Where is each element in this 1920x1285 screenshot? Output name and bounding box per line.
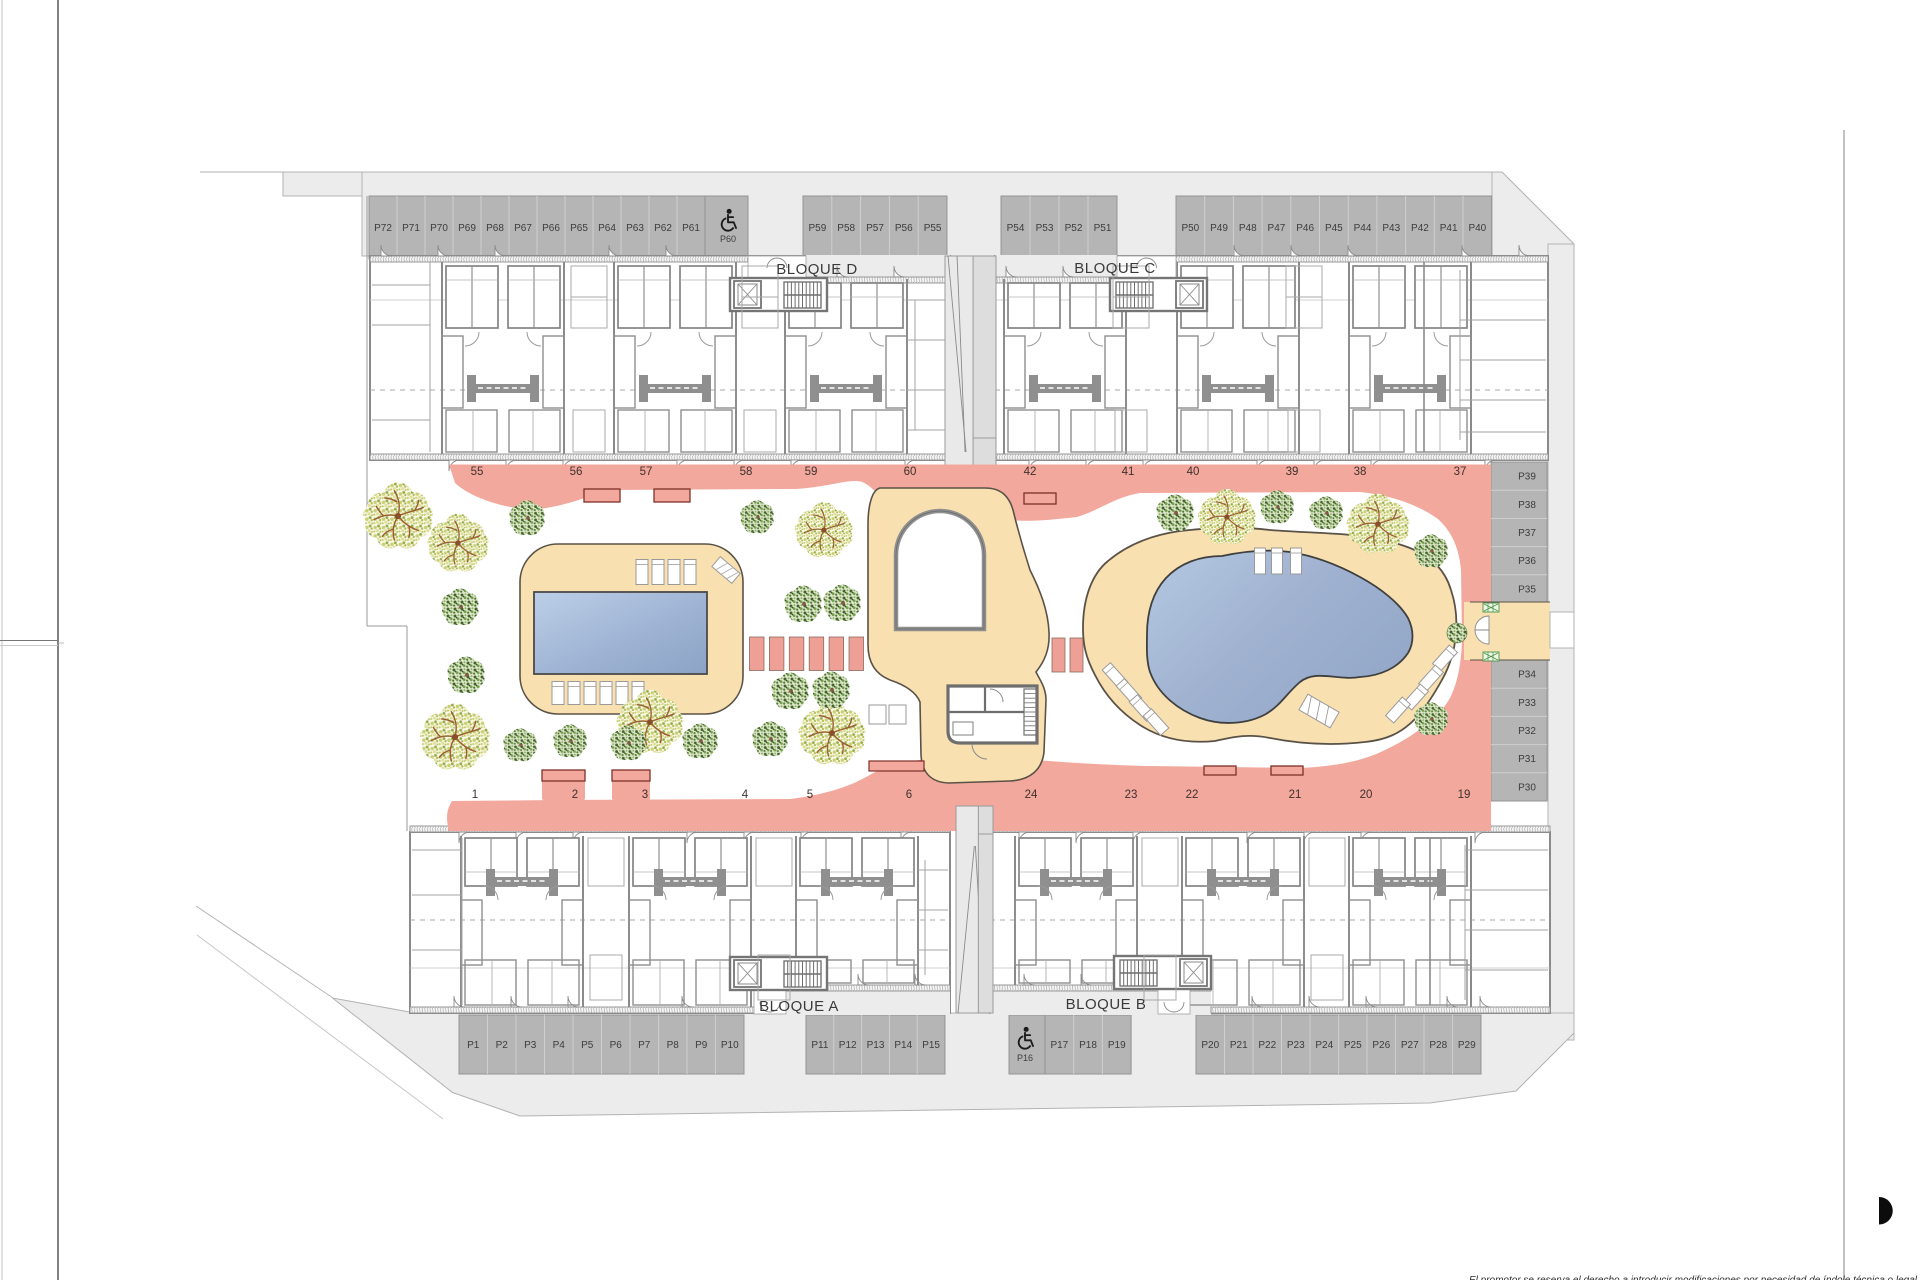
svg-text:BLOQUE D: BLOQUE D <box>776 261 858 278</box>
svg-text:P37: P37 <box>1518 528 1536 539</box>
svg-text:BLOQUE B: BLOQUE B <box>1066 996 1147 1013</box>
svg-text:P21: P21 <box>1230 1040 1248 1051</box>
svg-text:5: 5 <box>807 789 813 801</box>
svg-text:P6: P6 <box>610 1040 623 1051</box>
svg-text:P33: P33 <box>1518 698 1536 709</box>
svg-text:40: 40 <box>1187 466 1200 478</box>
svg-text:58: 58 <box>740 466 753 478</box>
svg-text:P14: P14 <box>894 1040 912 1051</box>
svg-text:P20: P20 <box>1201 1040 1219 1051</box>
svg-text:P43: P43 <box>1382 223 1400 234</box>
svg-text:60: 60 <box>904 466 917 478</box>
svg-text:P66: P66 <box>542 223 560 234</box>
svg-text:P30: P30 <box>1518 782 1536 793</box>
svg-text:P40: P40 <box>1468 223 1486 234</box>
svg-text:P29: P29 <box>1458 1040 1476 1051</box>
svg-text:6: 6 <box>906 789 912 801</box>
svg-text:P45: P45 <box>1325 223 1343 234</box>
svg-text:P68: P68 <box>486 223 504 234</box>
svg-text:P34: P34 <box>1518 670 1536 681</box>
svg-text:P9: P9 <box>695 1040 708 1051</box>
svg-text:P4: P4 <box>553 1040 566 1051</box>
svg-text:P1: P1 <box>467 1040 480 1051</box>
svg-text:3: 3 <box>642 789 648 801</box>
svg-text:P70: P70 <box>430 223 448 234</box>
svg-text:P57: P57 <box>866 223 884 234</box>
svg-text:P11: P11 <box>811 1040 828 1051</box>
svg-text:P63: P63 <box>626 223 644 234</box>
svg-text:P39: P39 <box>1518 472 1536 483</box>
svg-text:P42: P42 <box>1411 223 1429 234</box>
svg-text:P28: P28 <box>1429 1040 1447 1051</box>
svg-text:57: 57 <box>640 466 653 478</box>
svg-text:P2: P2 <box>496 1040 509 1051</box>
svg-text:P15: P15 <box>922 1040 940 1051</box>
svg-text:P22: P22 <box>1258 1040 1276 1051</box>
svg-text:41: 41 <box>1122 466 1135 478</box>
svg-text:P12: P12 <box>839 1040 857 1051</box>
svg-text:59: 59 <box>805 466 818 478</box>
svg-text:P60: P60 <box>720 234 736 244</box>
svg-text:P10: P10 <box>721 1040 739 1051</box>
svg-text:P24: P24 <box>1315 1040 1333 1051</box>
svg-text:P67: P67 <box>514 223 532 234</box>
svg-text:P49: P49 <box>1210 223 1228 234</box>
svg-text:P71: P71 <box>402 223 420 234</box>
svg-text:P47: P47 <box>1268 223 1286 234</box>
svg-text:P3: P3 <box>524 1040 537 1051</box>
svg-text:55: 55 <box>471 466 484 478</box>
svg-text:37: 37 <box>1454 466 1467 478</box>
svg-text:P18: P18 <box>1079 1040 1097 1051</box>
svg-text:P8: P8 <box>667 1040 680 1051</box>
svg-text:21: 21 <box>1289 789 1302 801</box>
svg-text:20: 20 <box>1360 789 1373 801</box>
svg-text:P55: P55 <box>924 223 942 234</box>
svg-text:P16: P16 <box>1017 1053 1033 1063</box>
svg-text:BLOQUE A: BLOQUE A <box>759 998 839 1015</box>
svg-text:P61: P61 <box>682 223 700 234</box>
svg-text:P58: P58 <box>837 223 855 234</box>
svg-text:P46: P46 <box>1296 223 1314 234</box>
svg-text:P41: P41 <box>1440 223 1458 234</box>
svg-text:P53: P53 <box>1036 223 1054 234</box>
svg-text:P7: P7 <box>638 1040 651 1051</box>
svg-text:BLOQUE C: BLOQUE C <box>1074 260 1156 277</box>
svg-text:23: 23 <box>1125 789 1138 801</box>
svg-text:56: 56 <box>570 466 583 478</box>
svg-text:El promotor se reserva el dere: El promotor se reserva el derecho a intr… <box>1469 1275 1918 1280</box>
svg-text:38: 38 <box>1354 466 1367 478</box>
svg-text:P62: P62 <box>654 223 672 234</box>
svg-text:P25: P25 <box>1344 1040 1362 1051</box>
svg-text:P17: P17 <box>1050 1040 1068 1051</box>
svg-text:42: 42 <box>1024 466 1037 478</box>
svg-text:P59: P59 <box>809 223 827 234</box>
svg-text:2: 2 <box>572 789 578 801</box>
svg-text:P54: P54 <box>1007 223 1025 234</box>
svg-text:P72: P72 <box>374 223 392 234</box>
svg-text:P31: P31 <box>1518 754 1536 765</box>
svg-text:P13: P13 <box>867 1040 885 1051</box>
svg-text:P69: P69 <box>458 223 476 234</box>
svg-text:4: 4 <box>742 789 749 801</box>
svg-text:P56: P56 <box>895 223 913 234</box>
svg-text:P44: P44 <box>1354 223 1372 234</box>
svg-text:P27: P27 <box>1401 1040 1419 1051</box>
svg-text:39: 39 <box>1286 466 1299 478</box>
svg-text:P35: P35 <box>1518 584 1536 595</box>
svg-text:24: 24 <box>1025 789 1038 801</box>
svg-text:P23: P23 <box>1287 1040 1305 1051</box>
svg-text:19: 19 <box>1458 789 1471 801</box>
svg-text:P19: P19 <box>1108 1040 1126 1051</box>
svg-text:P38: P38 <box>1518 500 1536 511</box>
svg-text:P52: P52 <box>1065 223 1083 234</box>
svg-text:P65: P65 <box>570 223 588 234</box>
svg-text:P51: P51 <box>1094 223 1112 234</box>
svg-text:22: 22 <box>1186 789 1199 801</box>
svg-text:P26: P26 <box>1372 1040 1390 1051</box>
svg-text:P36: P36 <box>1518 556 1536 567</box>
svg-text:P50: P50 <box>1181 223 1199 234</box>
svg-text:P32: P32 <box>1518 726 1536 737</box>
svg-text:1: 1 <box>472 789 478 801</box>
svg-text:P5: P5 <box>581 1040 594 1051</box>
svg-text:P48: P48 <box>1239 223 1257 234</box>
svg-text:P64: P64 <box>598 223 616 234</box>
